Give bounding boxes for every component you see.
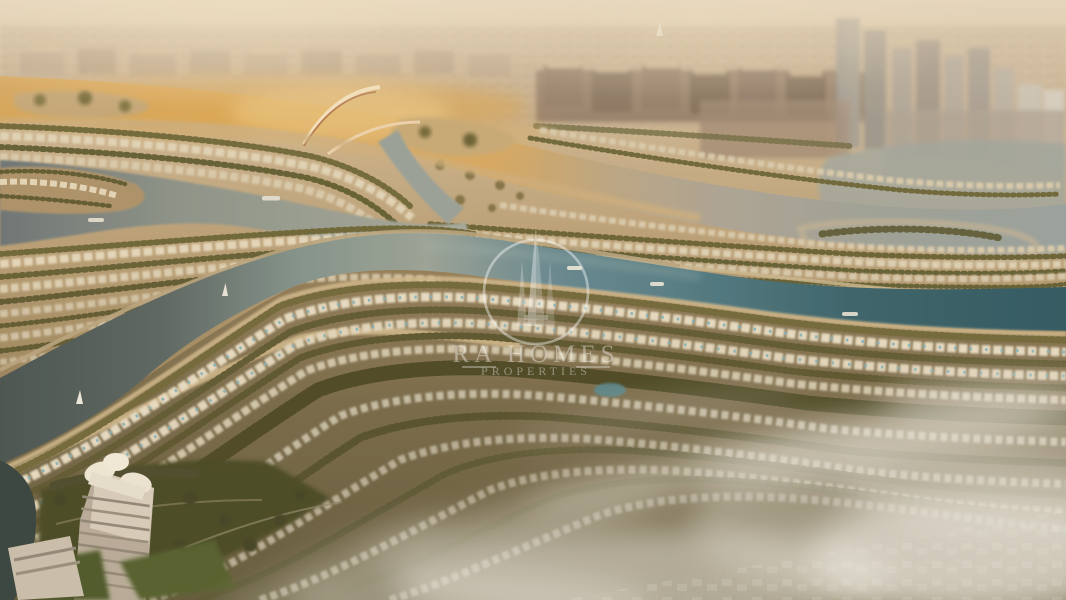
svg-text:PROPERTIES: PROPERTIES [481, 364, 591, 378]
